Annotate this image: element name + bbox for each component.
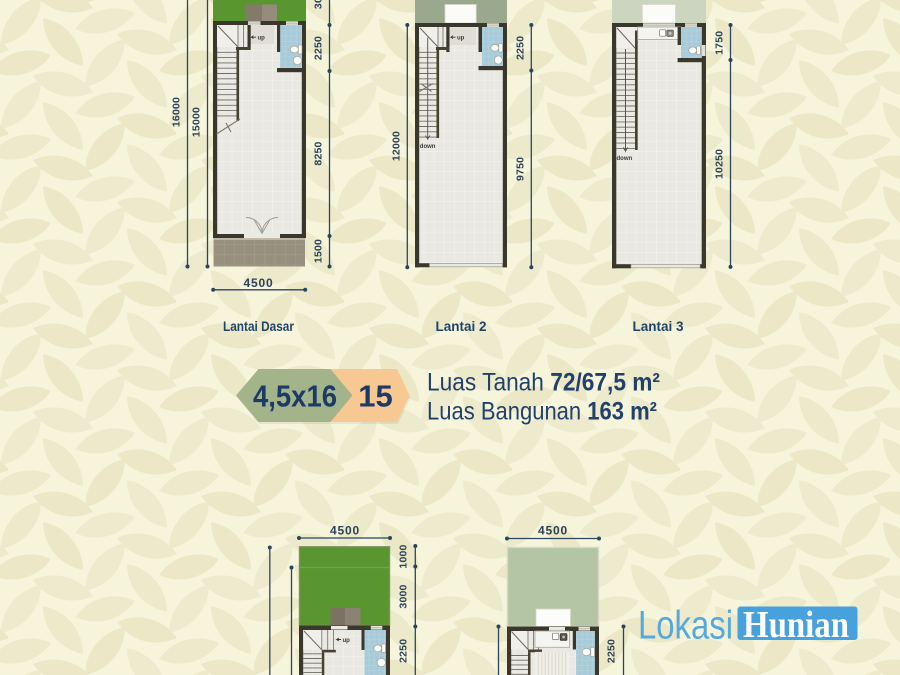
svg-text:4500: 4500 xyxy=(538,524,568,538)
svg-text:up: up xyxy=(343,638,351,644)
svg-text:up: up xyxy=(258,36,266,42)
svg-text:Hunian: Hunian xyxy=(743,604,849,646)
svg-text:Lokasi: Lokasi xyxy=(638,604,733,648)
svg-text:3000: 3000 xyxy=(313,0,325,9)
svg-text:1750: 1750 xyxy=(714,31,726,55)
svg-text:Lantai 2: Lantai 2 xyxy=(435,319,486,334)
svg-text:1500: 1500 xyxy=(313,239,325,263)
svg-text:2250: 2250 xyxy=(313,36,325,60)
svg-text:3000: 3000 xyxy=(398,584,410,608)
svg-text:8250: 8250 xyxy=(313,141,325,165)
svg-text:Luas Bangunan 163 m²: Luas Bangunan 163 m² xyxy=(427,397,657,425)
svg-text:4500: 4500 xyxy=(330,524,360,538)
svg-text:up: up xyxy=(457,36,465,42)
svg-text:10250: 10250 xyxy=(714,149,726,179)
svg-text:Lantai Dasar: Lantai Dasar xyxy=(223,319,295,334)
svg-text:Luas Tanah 72/67,5 m²: Luas Tanah 72/67,5 m² xyxy=(427,368,660,396)
svg-text:down: down xyxy=(420,144,436,150)
svg-text:4500: 4500 xyxy=(244,276,274,290)
svg-text:9750: 9750 xyxy=(515,157,527,181)
svg-text:4,5x16: 4,5x16 xyxy=(253,379,337,414)
svg-text:2250: 2250 xyxy=(515,36,527,60)
svg-text:15: 15 xyxy=(358,379,392,414)
svg-text:2250: 2250 xyxy=(606,639,618,663)
svg-text:16000: 16000 xyxy=(171,97,183,127)
svg-text:down: down xyxy=(617,156,633,162)
svg-text:15000: 15000 xyxy=(191,107,203,137)
svg-text:2250: 2250 xyxy=(398,639,410,663)
svg-text:1000: 1000 xyxy=(398,544,410,568)
svg-text:12000: 12000 xyxy=(391,131,403,161)
svg-text:Lantai 3: Lantai 3 xyxy=(632,319,684,334)
